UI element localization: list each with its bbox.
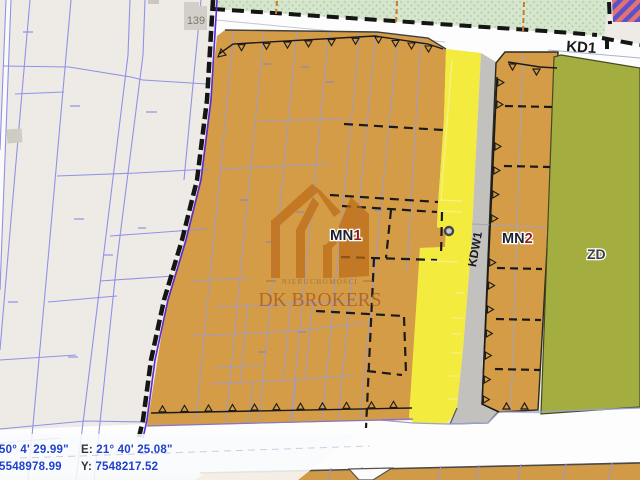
svg-text:KD1: KD1 (566, 38, 597, 57)
svg-text:MN1: MN1 (330, 227, 362, 244)
svg-text:139: 139 (187, 15, 205, 27)
svg-text:5548978.99: 5548978.99 (0, 461, 62, 473)
svg-text:ZD: ZD (587, 246, 606, 262)
svg-text:50° 4' 29.99": 50° 4' 29.99" (0, 444, 69, 456)
svg-text:MN2: MN2 (502, 231, 533, 247)
svg-text:Y: 7548217.52: Y: 7548217.52 (81, 461, 158, 473)
svg-text:DK BROKERS: DK BROKERS (259, 290, 382, 311)
svg-text:NIERUCHOMOŚCI: NIERUCHOMOŚCI (282, 278, 359, 286)
svg-text:E: 21° 40' 25.08": E: 21° 40' 25.08" (81, 444, 173, 456)
